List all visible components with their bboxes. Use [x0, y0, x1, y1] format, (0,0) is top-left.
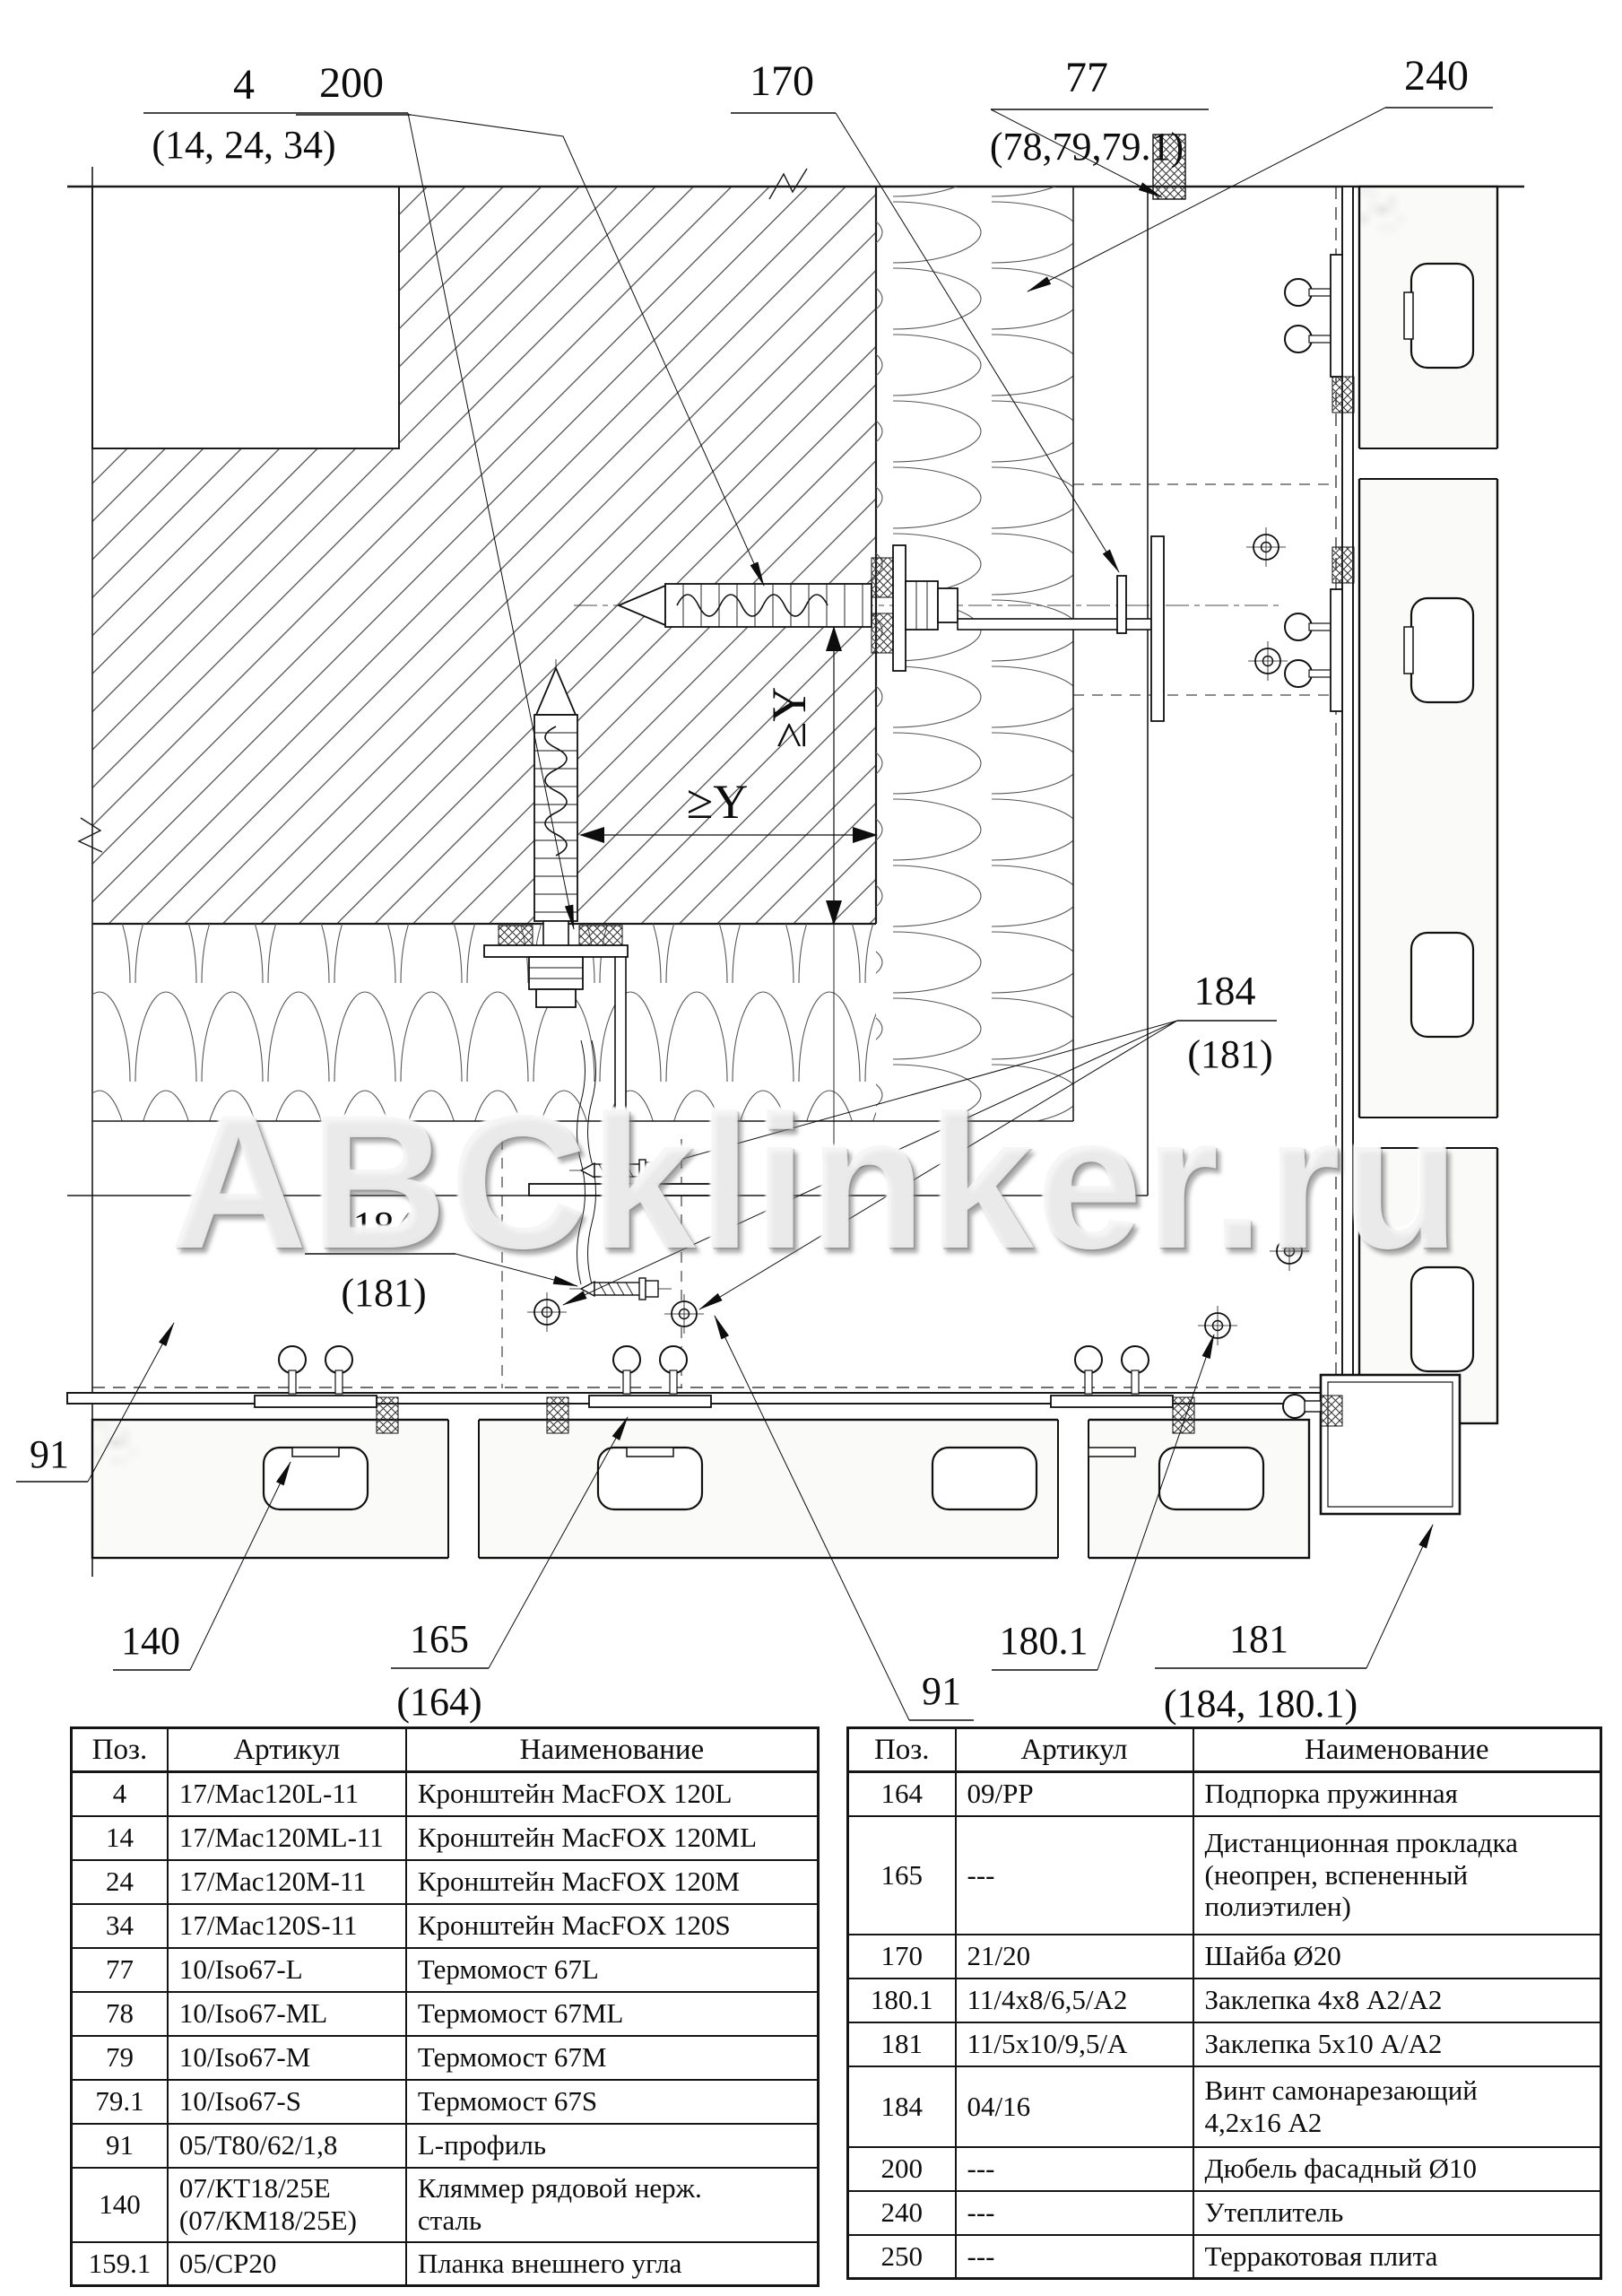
- cell-name: Шайба Ø20: [1193, 1935, 1601, 1979]
- col-header-pos: Поз.: [848, 1728, 956, 1772]
- col-header-pos: Поз.: [72, 1728, 168, 1772]
- cell-pos: 77: [72, 1948, 168, 1992]
- cell-pos: 79: [72, 2036, 168, 2080]
- cell-art: ---: [956, 1816, 1193, 1935]
- cell-name: Винт самонарезающий 4,2x16 А2: [1193, 2066, 1601, 2147]
- cell-pos: 24: [72, 1860, 168, 1904]
- cell-art: 10/Iso67-S: [168, 2080, 406, 2124]
- cell-pos: 140: [72, 2168, 168, 2242]
- table-row: 159.105/СР20Планка внешнего угла: [72, 2242, 819, 2286]
- col-header-art: Артикул: [956, 1728, 1193, 1772]
- table-row: 9105/Т80/62/1,8L-профиль: [72, 2124, 819, 2168]
- parts-table-left: Поз. Артикул Наименование 417/Mac120L-11…: [70, 1726, 820, 2287]
- table-row: 250---Терракотовая плита: [848, 2235, 1601, 2279]
- cell-pos: 170: [848, 1935, 956, 1979]
- bracket-plate: [893, 545, 906, 671]
- cell-pos: 180.1: [848, 1979, 956, 2022]
- cell-pos: 14: [72, 1816, 168, 1860]
- cell-name: Кронштейн MacFOX 120M: [406, 1860, 819, 1904]
- table-row: 7910/Iso67-MТермомост 67M: [72, 2036, 819, 2080]
- table-row: 2417/Mac120M-11Кронштейн MacFOX 120M: [72, 1860, 819, 1904]
- cell-art: 17/Mac120S-11: [168, 1904, 406, 1948]
- cell-pos: 4: [72, 1772, 168, 1816]
- table-row: 3417/Mac120S-11Кронштейн MacFOX 120S: [72, 1904, 819, 1948]
- bracket-plate: [484, 945, 628, 957]
- cell-art: 10/Iso67-M: [168, 2036, 406, 2080]
- cell-art: 11/5x10/9,5/А: [956, 2022, 1193, 2066]
- parts-table-right: Поз. Артикул Наименование 16409/PPПодпор…: [846, 1726, 1602, 2280]
- cell-art: 17/Mac120ML-11: [168, 1816, 406, 1860]
- svg-text:(14, 24, 34): (14, 24, 34): [152, 123, 335, 167]
- cell-name: Дистанционная прокладка (неопрен, вспене…: [1193, 1816, 1601, 1935]
- table-row: 14007/КТ18/25Е (07/КМ18/25Е)Кляммер рядо…: [72, 2168, 819, 2242]
- cell-name: Терракотовая плита: [1193, 2235, 1601, 2279]
- cell-name: Утеплитель: [1193, 2191, 1601, 2235]
- col-header-art: Артикул: [168, 1728, 406, 1772]
- bracket-arm: [615, 957, 626, 1187]
- svg-text:170: 170: [750, 57, 814, 105]
- cell-name: Кронштейн MacFOX 120ML: [406, 1816, 819, 1860]
- table-row: 7810/Iso67-MLТермомост 67ML: [72, 1992, 819, 2036]
- washer-20: [1117, 576, 1126, 633]
- table-row: 180.111/4x8/6,5/А2Заклепка 4x8 А2/А2: [848, 1979, 1601, 2022]
- col-header-name: Наименование: [1193, 1728, 1601, 1772]
- col-header-name: Наименование: [406, 1728, 819, 1772]
- cell-name: Дюбель фасадный Ø10: [1193, 2147, 1601, 2191]
- screw-184-lower: [569, 1278, 672, 1300]
- svg-text:(78,79,79.1): (78,79,79.1): [990, 125, 1184, 169]
- cell-pos: 34: [72, 1904, 168, 1948]
- cell-art: 04/16: [956, 2066, 1193, 2147]
- cell-name: Термомост 67M: [406, 2036, 819, 2080]
- cell-name: Кляммер рядовой нерж. сталь: [406, 2168, 819, 2242]
- cell-art: ---: [956, 2147, 1193, 2191]
- cell-pos: 181: [848, 2022, 956, 2066]
- cell-name: Заклепка 5x10 А/А2: [1193, 2022, 1601, 2066]
- svg-text:180.1: 180.1: [1000, 1619, 1089, 1663]
- svg-text:(184, 180.1): (184, 180.1): [1164, 1682, 1357, 1726]
- cell-art: 10/Iso67-ML: [168, 1992, 406, 2036]
- cell-art: 07/КТ18/25Е (07/КМ18/25Е): [168, 2168, 406, 2242]
- table-row: 1417/Mac120ML-11Кронштейн MacFOX 120ML: [72, 1816, 819, 1860]
- svg-text:91: 91: [922, 1669, 961, 1713]
- svg-text:(164): (164): [396, 1680, 481, 1724]
- cell-name: Кронштейн MacFOX 120L: [406, 1772, 819, 1816]
- cell-art: 05/Т80/62/1,8: [168, 2124, 406, 2168]
- svg-text:140: 140: [121, 1619, 180, 1663]
- cell-art: 05/СР20: [168, 2242, 406, 2286]
- cell-art: 21/20: [956, 1935, 1193, 1979]
- cell-name: Термомост 67L: [406, 1948, 819, 1992]
- cell-pos: 200: [848, 2147, 956, 2191]
- svg-text:184: 184: [353, 1203, 415, 1248]
- table-row: 17021/20Шайба Ø20: [848, 1935, 1601, 1979]
- cell-pos: 79.1: [72, 2080, 168, 2124]
- cell-name: L-профиль: [406, 2124, 819, 2168]
- rivet-head: [1283, 1395, 1306, 1418]
- dim-horizontal-label: ≥Y: [687, 775, 749, 829]
- svg-text:200: 200: [319, 59, 384, 107]
- cell-art: 17/Mac120M-11: [168, 1860, 406, 1904]
- cell-name: Подпорка пружинная: [1193, 1772, 1601, 1816]
- table-row: 79.110/Iso67-SТермомост 67S: [72, 2080, 819, 2124]
- table-row: 165---Дистанционная прокладка (неопрен, …: [848, 1816, 1601, 1935]
- cell-art: 10/Iso67-L: [168, 1948, 406, 1992]
- cell-pos: 91: [72, 2124, 168, 2168]
- svg-text:(181): (181): [341, 1271, 426, 1315]
- svg-text:240: 240: [1404, 52, 1469, 100]
- svg-text:184: 184: [1194, 968, 1256, 1013]
- cell-pos: 240: [848, 2191, 956, 2235]
- table-row: 18111/5x10/9,5/АЗаклепка 5x10 А/А2: [848, 2022, 1601, 2066]
- cell-pos: 164: [848, 1772, 956, 1816]
- svg-text:77: 77: [1065, 54, 1108, 101]
- cell-pos: 78: [72, 1992, 168, 2036]
- table-row: 240---Утеплитель: [848, 2191, 1601, 2235]
- svg-text:4: 4: [233, 61, 255, 109]
- table-row: 16409/PPПодпорка пружинная: [848, 1772, 1601, 1816]
- svg-text:165: 165: [410, 1617, 469, 1661]
- svg-text:181: 181: [1229, 1617, 1288, 1661]
- l-profile-vertical: [1342, 187, 1353, 1375]
- cell-pos: 165: [848, 1816, 956, 1935]
- table-row: 200---Дюбель фасадный Ø10: [848, 2147, 1601, 2191]
- terracotta-panels-bottom: [92, 1418, 1309, 1560]
- cell-art: 17/Mac120L-11: [168, 1772, 406, 1816]
- table-row: 18404/16Винт самонарезающий 4,2x16 А2: [848, 2066, 1601, 2147]
- terracotta-panels-right: [1357, 187, 1499, 1423]
- cell-art: 11/4x8/6,5/А2: [956, 1979, 1193, 2022]
- table-row: 7710/Iso67-LТермомост 67L: [72, 1948, 819, 1992]
- svg-text:(181): (181): [1187, 1032, 1272, 1076]
- cell-name: Термомост 67ML: [406, 1992, 819, 2036]
- cell-art: ---: [956, 2191, 1193, 2235]
- cell-art: 09/PP: [956, 1772, 1193, 1816]
- callout-screw-left: 184 (181): [305, 1203, 577, 1315]
- table-row: 417/Mac120L-11Кронштейн MacFOX 120L: [72, 1772, 819, 1816]
- cell-pos: 159.1: [72, 2242, 168, 2286]
- cell-name: Термомост 67S: [406, 2080, 819, 2124]
- cell-name: Планка внешнего угла: [406, 2242, 819, 2286]
- dim-vertical-label: ≥Y: [762, 687, 816, 749]
- technical-drawing-page: ≥Y ≥Y 4 (14, 24, 34) 200 170 77 (78,79,7…: [0, 0, 1622, 2296]
- svg-text:91: 91: [30, 1432, 69, 1476]
- cell-name: Кронштейн MacFOX 120S: [406, 1904, 819, 1948]
- cell-art: ---: [956, 2235, 1193, 2279]
- cell-pos: 184: [848, 2066, 956, 2147]
- cell-pos: 250: [848, 2235, 956, 2279]
- cell-name: Заклепка 4x8 А2/А2: [1193, 1979, 1601, 2022]
